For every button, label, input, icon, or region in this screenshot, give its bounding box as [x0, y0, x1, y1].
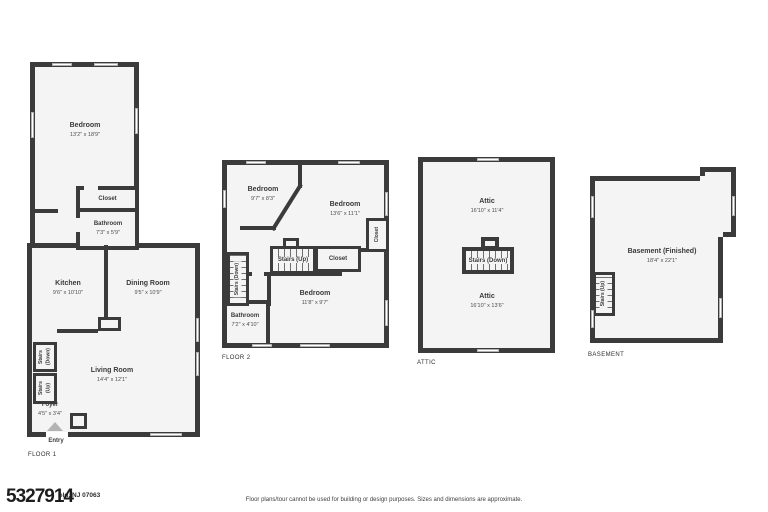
floor1-bedroom-label: Bedroom 13'2" x 18'9" — [45, 122, 125, 139]
room-name: Bathroom — [222, 313, 268, 321]
attic-back-label: Attic 16'10" x 13'6" — [457, 293, 517, 310]
floor2-hall-closet: Closet — [315, 246, 361, 272]
room-name: Kitchen — [38, 280, 98, 289]
window-marker — [338, 161, 360, 164]
wall — [30, 209, 58, 213]
room-name: Living Room — [82, 367, 142, 376]
attic-front-label: Attic 16'10" x 11'4" — [457, 198, 517, 215]
room-dims: 9'7" x 8'3" — [233, 196, 293, 203]
stairs-nose — [481, 237, 499, 250]
window-marker — [196, 318, 199, 342]
room-name: Entry — [40, 438, 72, 446]
basement-tag: BASEMENT — [588, 352, 624, 358]
wall — [76, 208, 139, 212]
floor1-stairs-up: Stairs (Up) — [33, 373, 57, 404]
stairs-up-label: Stairs (Up) — [38, 376, 53, 401]
room-dims: 7'2" x 4'10" — [222, 322, 268, 329]
room-name: Basement (Finished) — [612, 248, 712, 257]
floor2-tag: FLOOR 2 — [222, 355, 250, 361]
stairs-up-label: Stairs (Up) — [600, 279, 608, 308]
window-marker — [591, 310, 594, 328]
window-marker — [31, 112, 34, 138]
stairs-up-label: Stairs (Up) — [276, 257, 310, 263]
stairs-down-label: Stairs (Down) — [38, 345, 53, 369]
room-name: Closet — [84, 196, 131, 204]
kitchen-island — [98, 317, 121, 331]
watermark-number: 5327914 — [6, 486, 73, 508]
basement-main-label: Basement (Finished) 18'4" x 22'1" — [612, 248, 712, 265]
closet-label: Closet — [374, 227, 382, 242]
window-marker — [385, 300, 388, 326]
disclaimer-text: Floor plans/tour cannot be used for buil… — [0, 497, 768, 503]
window-marker — [385, 192, 388, 216]
room-dims: 9'6" x 10'10" — [38, 290, 98, 297]
room-dims: 13'6" x 11'1" — [315, 211, 375, 218]
window-marker — [150, 433, 182, 436]
room-name: Bedroom — [233, 186, 293, 195]
room-dims: 9'5" x 10'9" — [118, 290, 178, 297]
floor1-living-label: Living Room 14'4" x 12'1" — [82, 367, 142, 384]
room-name: Bedroom — [45, 122, 125, 131]
basement-stairs-up: Stairs (Up) — [593, 272, 615, 316]
window-marker — [252, 344, 272, 347]
entry-closet — [70, 413, 87, 429]
room-name: Foyer — [33, 402, 67, 410]
window-marker — [477, 158, 499, 161]
window-marker — [300, 344, 330, 347]
room-dims: 7'3" x 5'9" — [82, 230, 134, 237]
window-marker — [52, 63, 72, 66]
room-dims: 16'10" x 11'4" — [457, 208, 517, 215]
window-marker — [223, 190, 226, 208]
floor2-bedroom-a-label: Bedroom 9'7" x 8'3" — [233, 186, 293, 203]
floor1-bathroom-label: Bathroom 7'3" x 5'9" — [82, 221, 134, 236]
entry-door-opening — [46, 432, 68, 437]
floor2-stairs-up: Stairs (Up) — [270, 246, 316, 274]
stairs-nose — [283, 238, 299, 249]
room-dims: 11'8" x 9'7" — [285, 300, 345, 307]
window-marker — [719, 298, 722, 318]
floor1-tag: FLOOR 1 — [28, 452, 56, 458]
room-name: Dining Room — [118, 280, 178, 289]
floor2-stairs-down: Stairs (Down) — [227, 252, 249, 306]
floor2-bedroom-c-label: Bedroom 11'8" x 9'7" — [285, 290, 345, 307]
closet-label: Closet — [327, 256, 349, 262]
stairs-down-label: Stairs (Down) — [467, 258, 510, 264]
outline-merge-patch — [700, 176, 723, 237]
room-dims: 16'10" x 13'6" — [457, 303, 517, 310]
floor2-side-closet: Closet — [366, 218, 389, 252]
floor2-bathroom-label: Bathroom 7'2" x 4'10" — [222, 313, 268, 328]
window-marker — [196, 352, 199, 376]
room-name: Bedroom — [285, 290, 345, 299]
room-name: Attic — [457, 293, 517, 302]
room-name: Bathroom — [82, 221, 134, 229]
floorplan-canvas: Stairs (Down) Stairs (Up) Bedroom 13'2" … — [0, 0, 768, 512]
door-opening — [252, 272, 264, 276]
door-opening — [84, 186, 98, 190]
window-marker — [94, 63, 118, 66]
window-marker — [477, 349, 499, 352]
wall — [57, 329, 98, 333]
floor1-stairs-down: Stairs (Down) — [33, 342, 57, 372]
stairs-down-label: Stairs (Down) — [234, 261, 242, 297]
floor1-closet-label: Closet — [84, 196, 131, 204]
floor1-entry-label: Entry — [40, 438, 72, 446]
wall — [240, 226, 276, 230]
attic-stairs-down: Stairs (Down) — [462, 247, 514, 274]
room-dims: 4'5" x 3'4" — [33, 411, 67, 418]
window-marker — [246, 161, 266, 164]
room-dims: 18'4" x 22'1" — [612, 258, 712, 265]
floor1-dining-label: Dining Room 9'5" x 10'9" — [118, 280, 178, 297]
room-dims: 14'4" x 12'1" — [82, 377, 142, 384]
window-marker — [591, 196, 594, 218]
room-name: Bedroom — [315, 201, 375, 210]
floor1-foyer-label: Foyer 4'5" x 3'4" — [33, 402, 67, 417]
room-name: Attic — [457, 198, 517, 207]
attic-tag: ATTIC — [417, 360, 436, 366]
floor1-kitchen-label: Kitchen 9'6" x 10'10" — [38, 280, 98, 297]
window-marker — [732, 196, 735, 216]
floor2-bedroom-b-label: Bedroom 13'6" x 11'1" — [315, 201, 375, 218]
wall — [104, 245, 108, 317]
room-dims: 13'2" x 18'9" — [45, 132, 125, 139]
entry-arrow-icon — [47, 422, 63, 431]
door-opening — [76, 218, 80, 232]
window-marker — [135, 108, 138, 134]
